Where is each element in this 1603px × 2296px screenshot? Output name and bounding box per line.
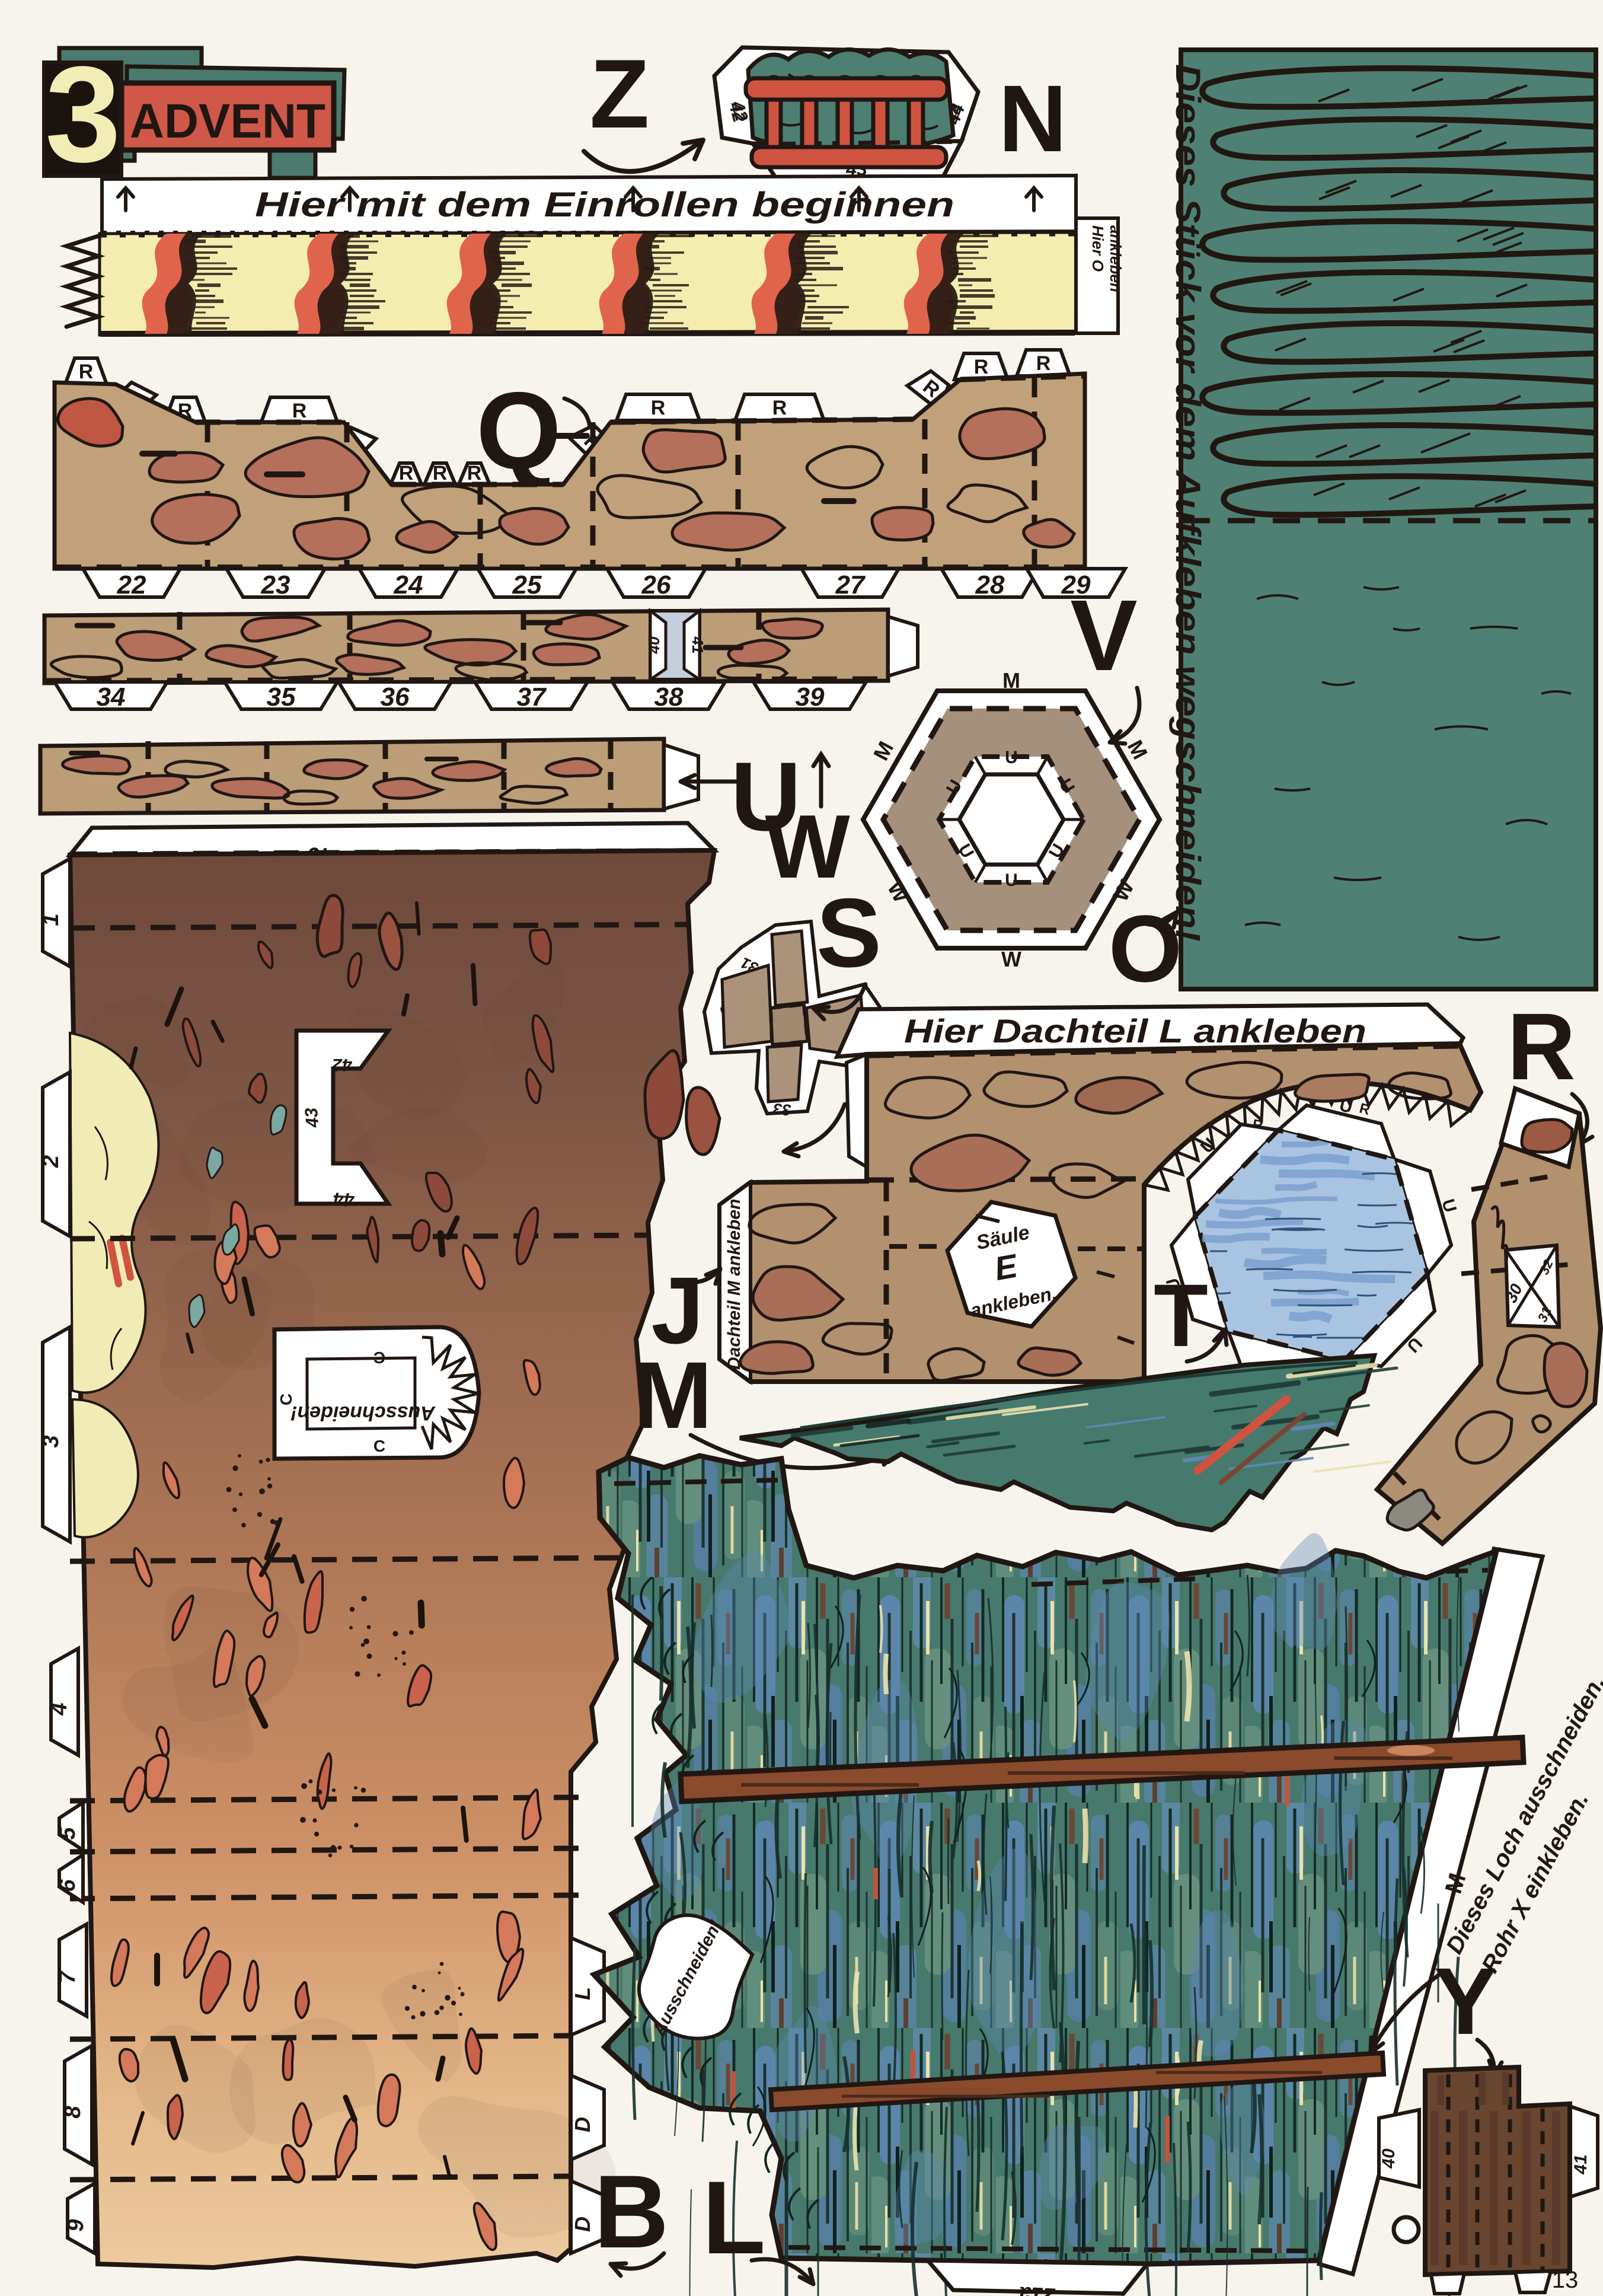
svg-text:Q: Q xyxy=(476,370,561,492)
svg-text:41: 41 xyxy=(689,636,707,654)
svg-text:27: 27 xyxy=(835,570,866,599)
svg-text:C: C xyxy=(373,1437,385,1455)
svg-text:7: 7 xyxy=(55,1970,80,1984)
svg-text:Hier mit dem Einrollen beg: Hier mit dem Einrollen beginnen xyxy=(255,186,954,224)
svg-text:1: 1 xyxy=(39,913,63,926)
svg-text:Z: Z xyxy=(590,39,650,148)
svg-text:Ausschneiden!: Ausschneiden! xyxy=(290,1402,436,1424)
svg-text:U: U xyxy=(1005,748,1018,767)
svg-text:R: R xyxy=(433,462,448,484)
svg-text:R: R xyxy=(772,397,787,419)
svg-text:L: L xyxy=(570,1987,595,2000)
svg-text:C: C xyxy=(277,1393,295,1405)
svg-text:4: 4 xyxy=(47,1702,72,1715)
svg-text:9: 9 xyxy=(63,2219,88,2231)
svg-text:R: R xyxy=(399,462,414,484)
svg-text:40: 40 xyxy=(645,636,663,654)
svg-text:38: 38 xyxy=(654,683,684,712)
svg-text:25: 25 xyxy=(512,570,542,599)
svg-text:M: M xyxy=(633,1342,712,1448)
svg-text:M: M xyxy=(1002,668,1020,693)
svg-text:V: V xyxy=(1070,579,1137,692)
svg-text:2: 2 xyxy=(39,1155,63,1168)
svg-text:33: 33 xyxy=(772,1100,792,1120)
svg-text:3: 3 xyxy=(45,38,121,190)
svg-text:28: 28 xyxy=(975,570,1005,599)
svg-text:35: 35 xyxy=(267,683,296,712)
svg-text:Dieses Stück vor dem Aufkleben: Dieses Stück vor dem Aufkleben wegschnei… xyxy=(1168,64,1207,942)
svg-text:13: 13 xyxy=(1552,2267,1579,2293)
svg-text:39: 39 xyxy=(796,683,825,712)
svg-text:41: 41 xyxy=(1571,2154,1591,2174)
svg-text:W: W xyxy=(1001,947,1021,971)
svg-text:6: 6 xyxy=(55,1879,80,1892)
svg-text:S: S xyxy=(816,878,882,987)
svg-text:R: R xyxy=(651,397,666,419)
svg-text:R: R xyxy=(467,462,482,484)
svg-text:3: 3 xyxy=(39,1435,63,1447)
svg-text:C: C xyxy=(373,1348,385,1367)
svg-text:U: U xyxy=(1005,870,1018,890)
svg-text:R: R xyxy=(1036,352,1051,375)
svg-text:ADVENT: ADVENT xyxy=(130,94,325,148)
svg-text:21a: 21a xyxy=(1018,2282,1056,2296)
svg-text:B: B xyxy=(594,2154,669,2270)
svg-text:43: 43 xyxy=(302,1106,323,1128)
svg-text:42: 42 xyxy=(332,1055,353,1074)
svg-text:R: R xyxy=(79,361,94,383)
svg-text:5: 5 xyxy=(55,1827,80,1840)
svg-text:8: 8 xyxy=(60,2106,85,2119)
svg-text:23: 23 xyxy=(261,570,290,599)
svg-text:37: 37 xyxy=(517,683,547,712)
svg-text:T: T xyxy=(1154,1265,1208,1365)
svg-text:34: 34 xyxy=(97,683,126,712)
svg-text:D: D xyxy=(570,2117,595,2132)
svg-text:40: 40 xyxy=(1379,2148,1398,2169)
svg-text:Y: Y xyxy=(1434,1948,1497,2054)
svg-text:R: R xyxy=(974,356,989,378)
svg-text:ankleben: ankleben xyxy=(1107,225,1125,292)
svg-text:R: R xyxy=(292,400,307,422)
svg-text:24: 24 xyxy=(394,570,423,599)
svg-text:Dachteil M ankleben: Dachteil M ankleben xyxy=(724,1199,744,1370)
svg-text:D: D xyxy=(570,2217,595,2232)
svg-text:N: N xyxy=(998,65,1067,171)
svg-text:Hier O: Hier O xyxy=(1089,225,1107,272)
svg-text:22: 22 xyxy=(117,570,146,599)
svg-text:26: 26 xyxy=(641,570,671,599)
svg-text:36: 36 xyxy=(381,683,410,712)
svg-text:44: 44 xyxy=(333,1188,355,1210)
svg-text:Hier Dachteil L ankleben: Hier Dachteil L ankleben xyxy=(904,1012,1366,1050)
svg-text:R: R xyxy=(1507,993,1576,1099)
